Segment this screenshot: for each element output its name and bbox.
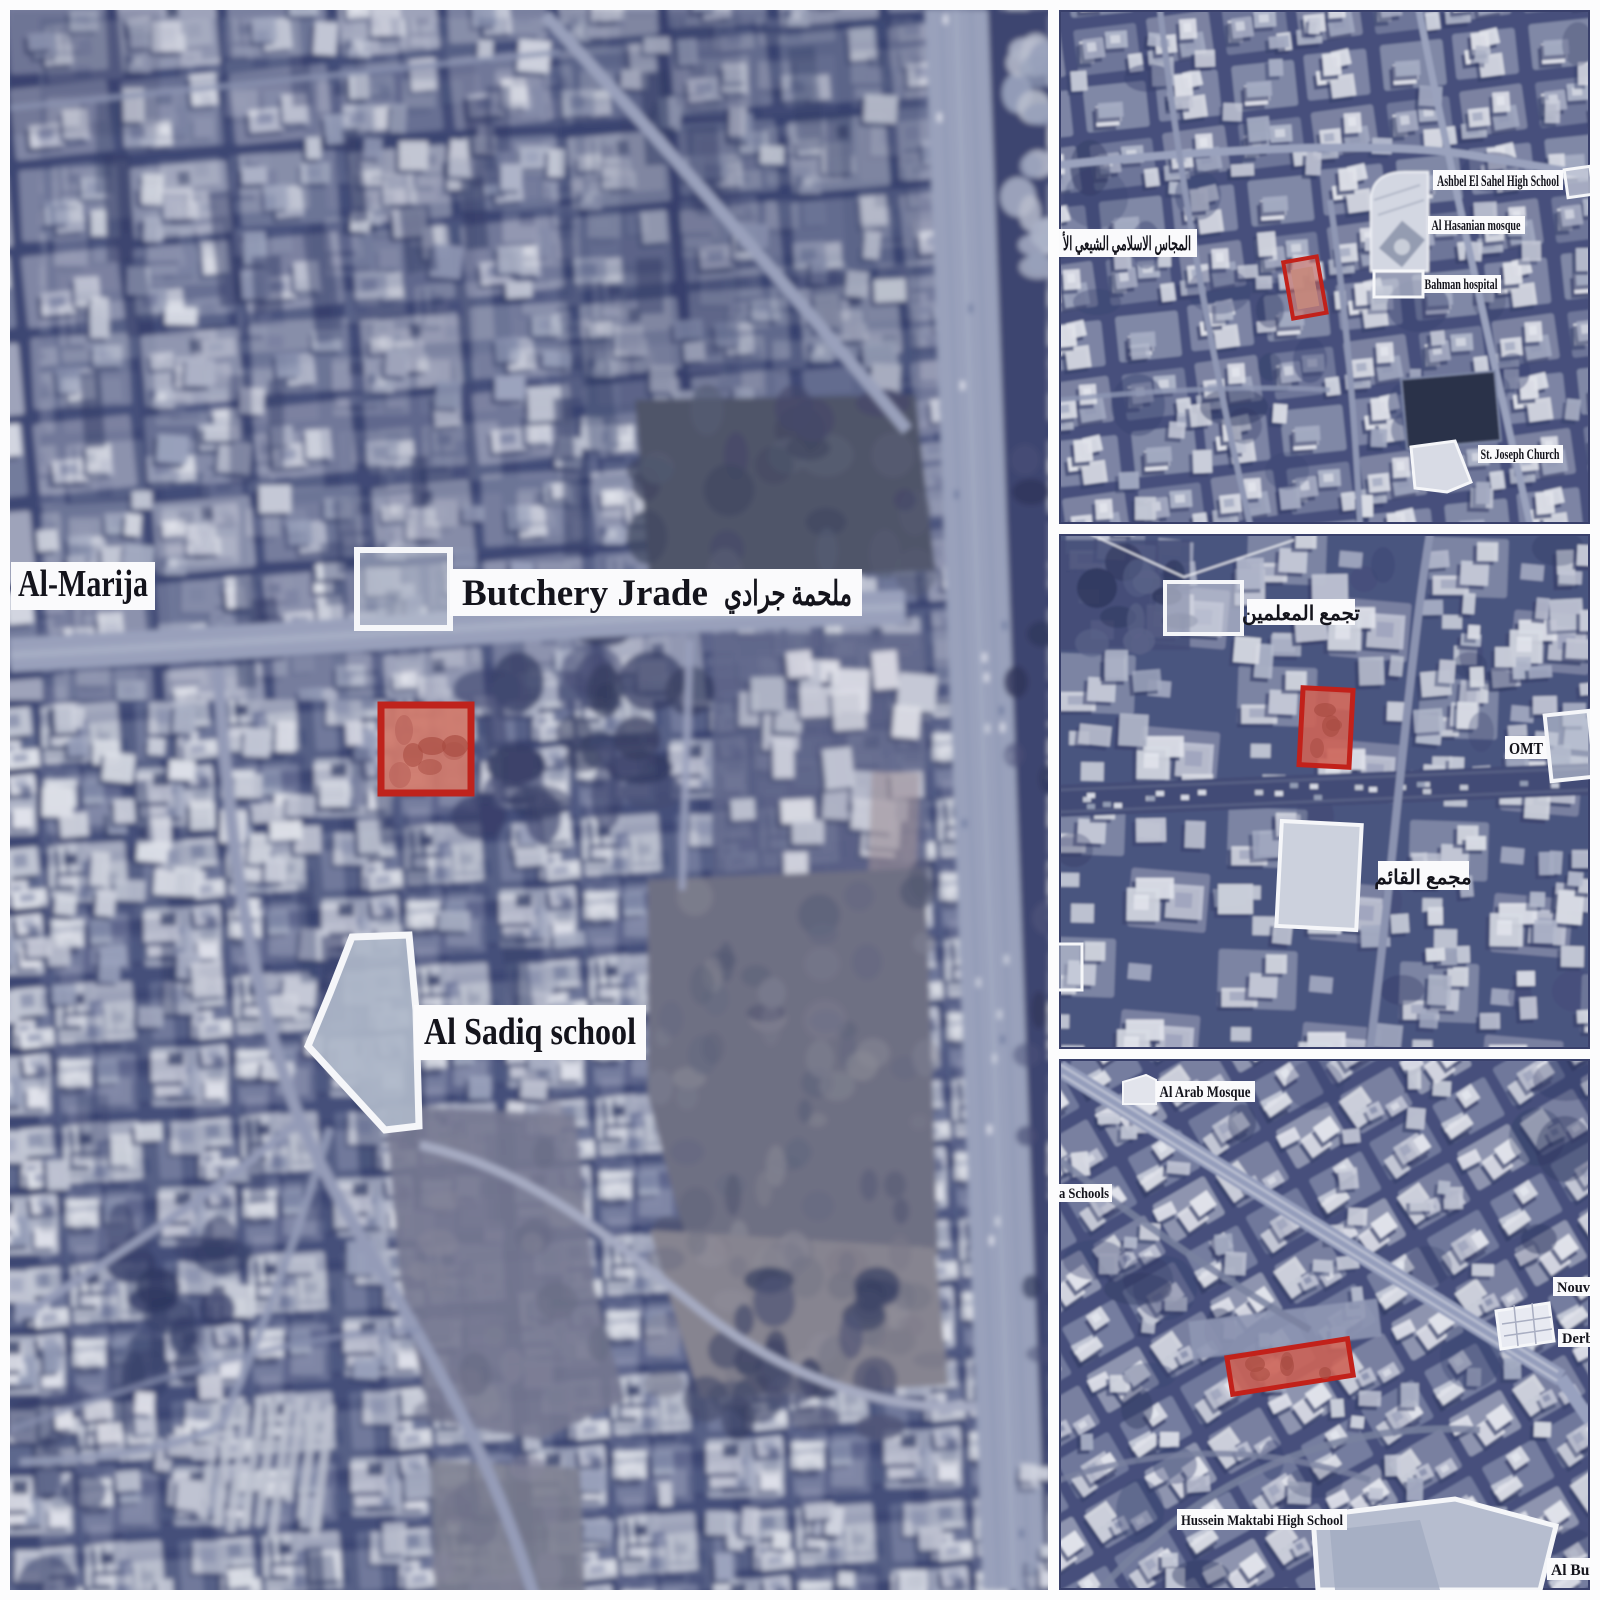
svg-text:a Schools: a Schools	[1059, 1186, 1109, 1202]
svg-text:مجمع القائم: مجمع القائم	[1374, 867, 1472, 890]
svg-text:Nouve: Nouve	[1557, 1280, 1597, 1296]
svg-text:Ashbel El Sahel High School: Ashbel El Sahel High School	[1437, 173, 1559, 190]
svg-text:St. Joseph Church: St. Joseph Church	[1481, 447, 1560, 463]
svg-text:تجمع المعلمين: تجمع المعلمين	[1242, 603, 1360, 626]
svg-text:المجاس الاسلامي الشيعي الأ: المجاس الاسلامي الشيعي الأ	[1062, 231, 1191, 256]
svg-text:Hussein Maktabi High School: Hussein Maktabi High School	[1181, 1513, 1343, 1529]
svg-text:ملحمة جرادي: ملحمة جرادي	[724, 576, 852, 614]
svg-text:Al Arab Mosque: Al Arab Mosque	[1160, 1084, 1251, 1101]
svg-text:Al Burj: Al Burj	[1551, 1562, 1600, 1579]
svg-text:Al-Marija: Al-Marija	[18, 563, 148, 605]
svg-text:Derb: Derb	[1562, 1331, 1593, 1347]
svg-text:OMT: OMT	[1509, 739, 1544, 758]
svg-text:Butchery Jrade: Butchery Jrade	[462, 573, 708, 614]
svg-text:Al Sadiq school: Al Sadiq school	[424, 1011, 636, 1053]
svg-text:Al Hasanian mosque: Al Hasanian mosque	[1432, 218, 1521, 234]
svg-text:Bahman hospital: Bahman hospital	[1425, 277, 1498, 293]
